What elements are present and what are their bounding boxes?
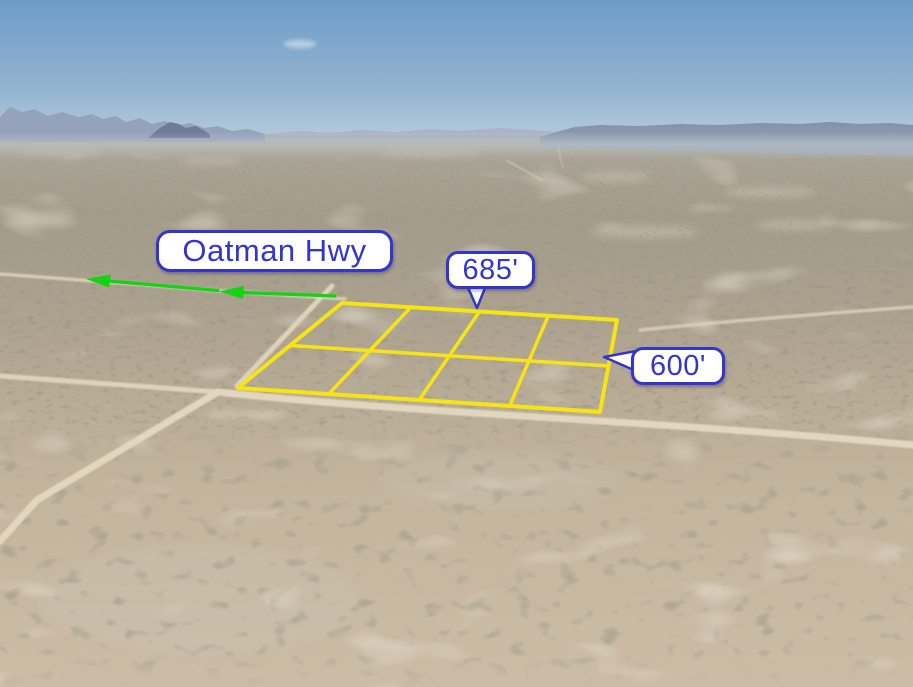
parcel-depth-label: 600' <box>631 347 725 385</box>
cloud-wisp <box>284 40 316 48</box>
terrain-scene <box>0 0 913 687</box>
sand-mottling <box>0 150 913 687</box>
highway-name-label: Oatman Hwy <box>156 230 393 272</box>
parcel-width-label: 685' <box>446 251 535 289</box>
aerial-land-photo: Oatman Hwy 685' 600' <box>0 0 913 687</box>
